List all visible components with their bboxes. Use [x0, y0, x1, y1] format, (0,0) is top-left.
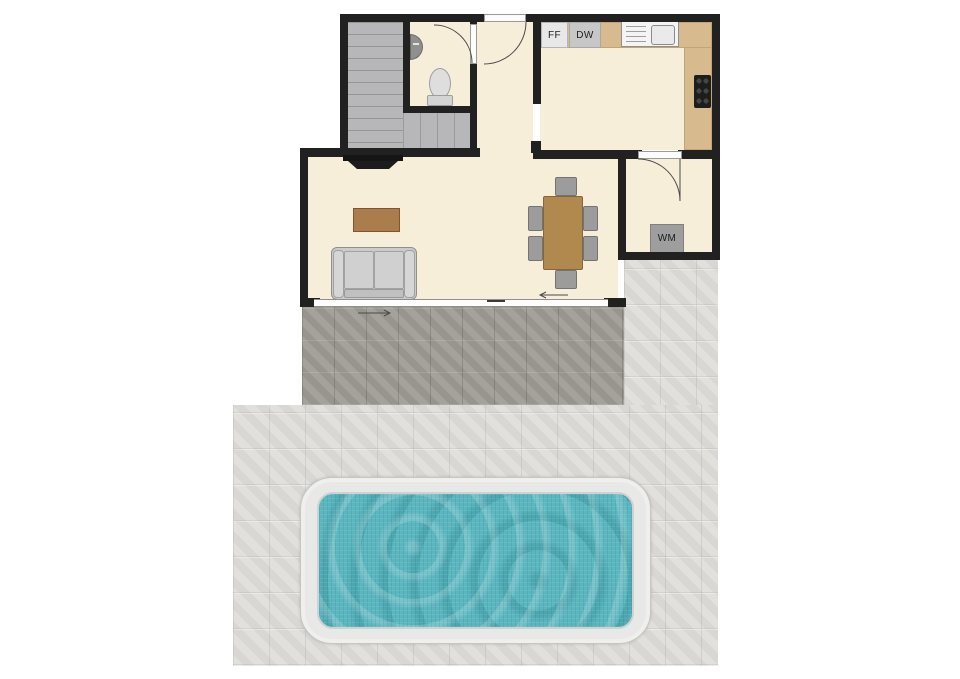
- arrow-right-icon: [358, 310, 390, 316]
- utility-door-swing: [638, 159, 680, 201]
- floor-plan: FF DW WM: [0, 0, 960, 679]
- bathroom-door-swing: [434, 25, 472, 63]
- annotation-overlay: [0, 0, 960, 679]
- front-door-swing: [484, 22, 526, 64]
- arrow-left-icon: [540, 292, 568, 298]
